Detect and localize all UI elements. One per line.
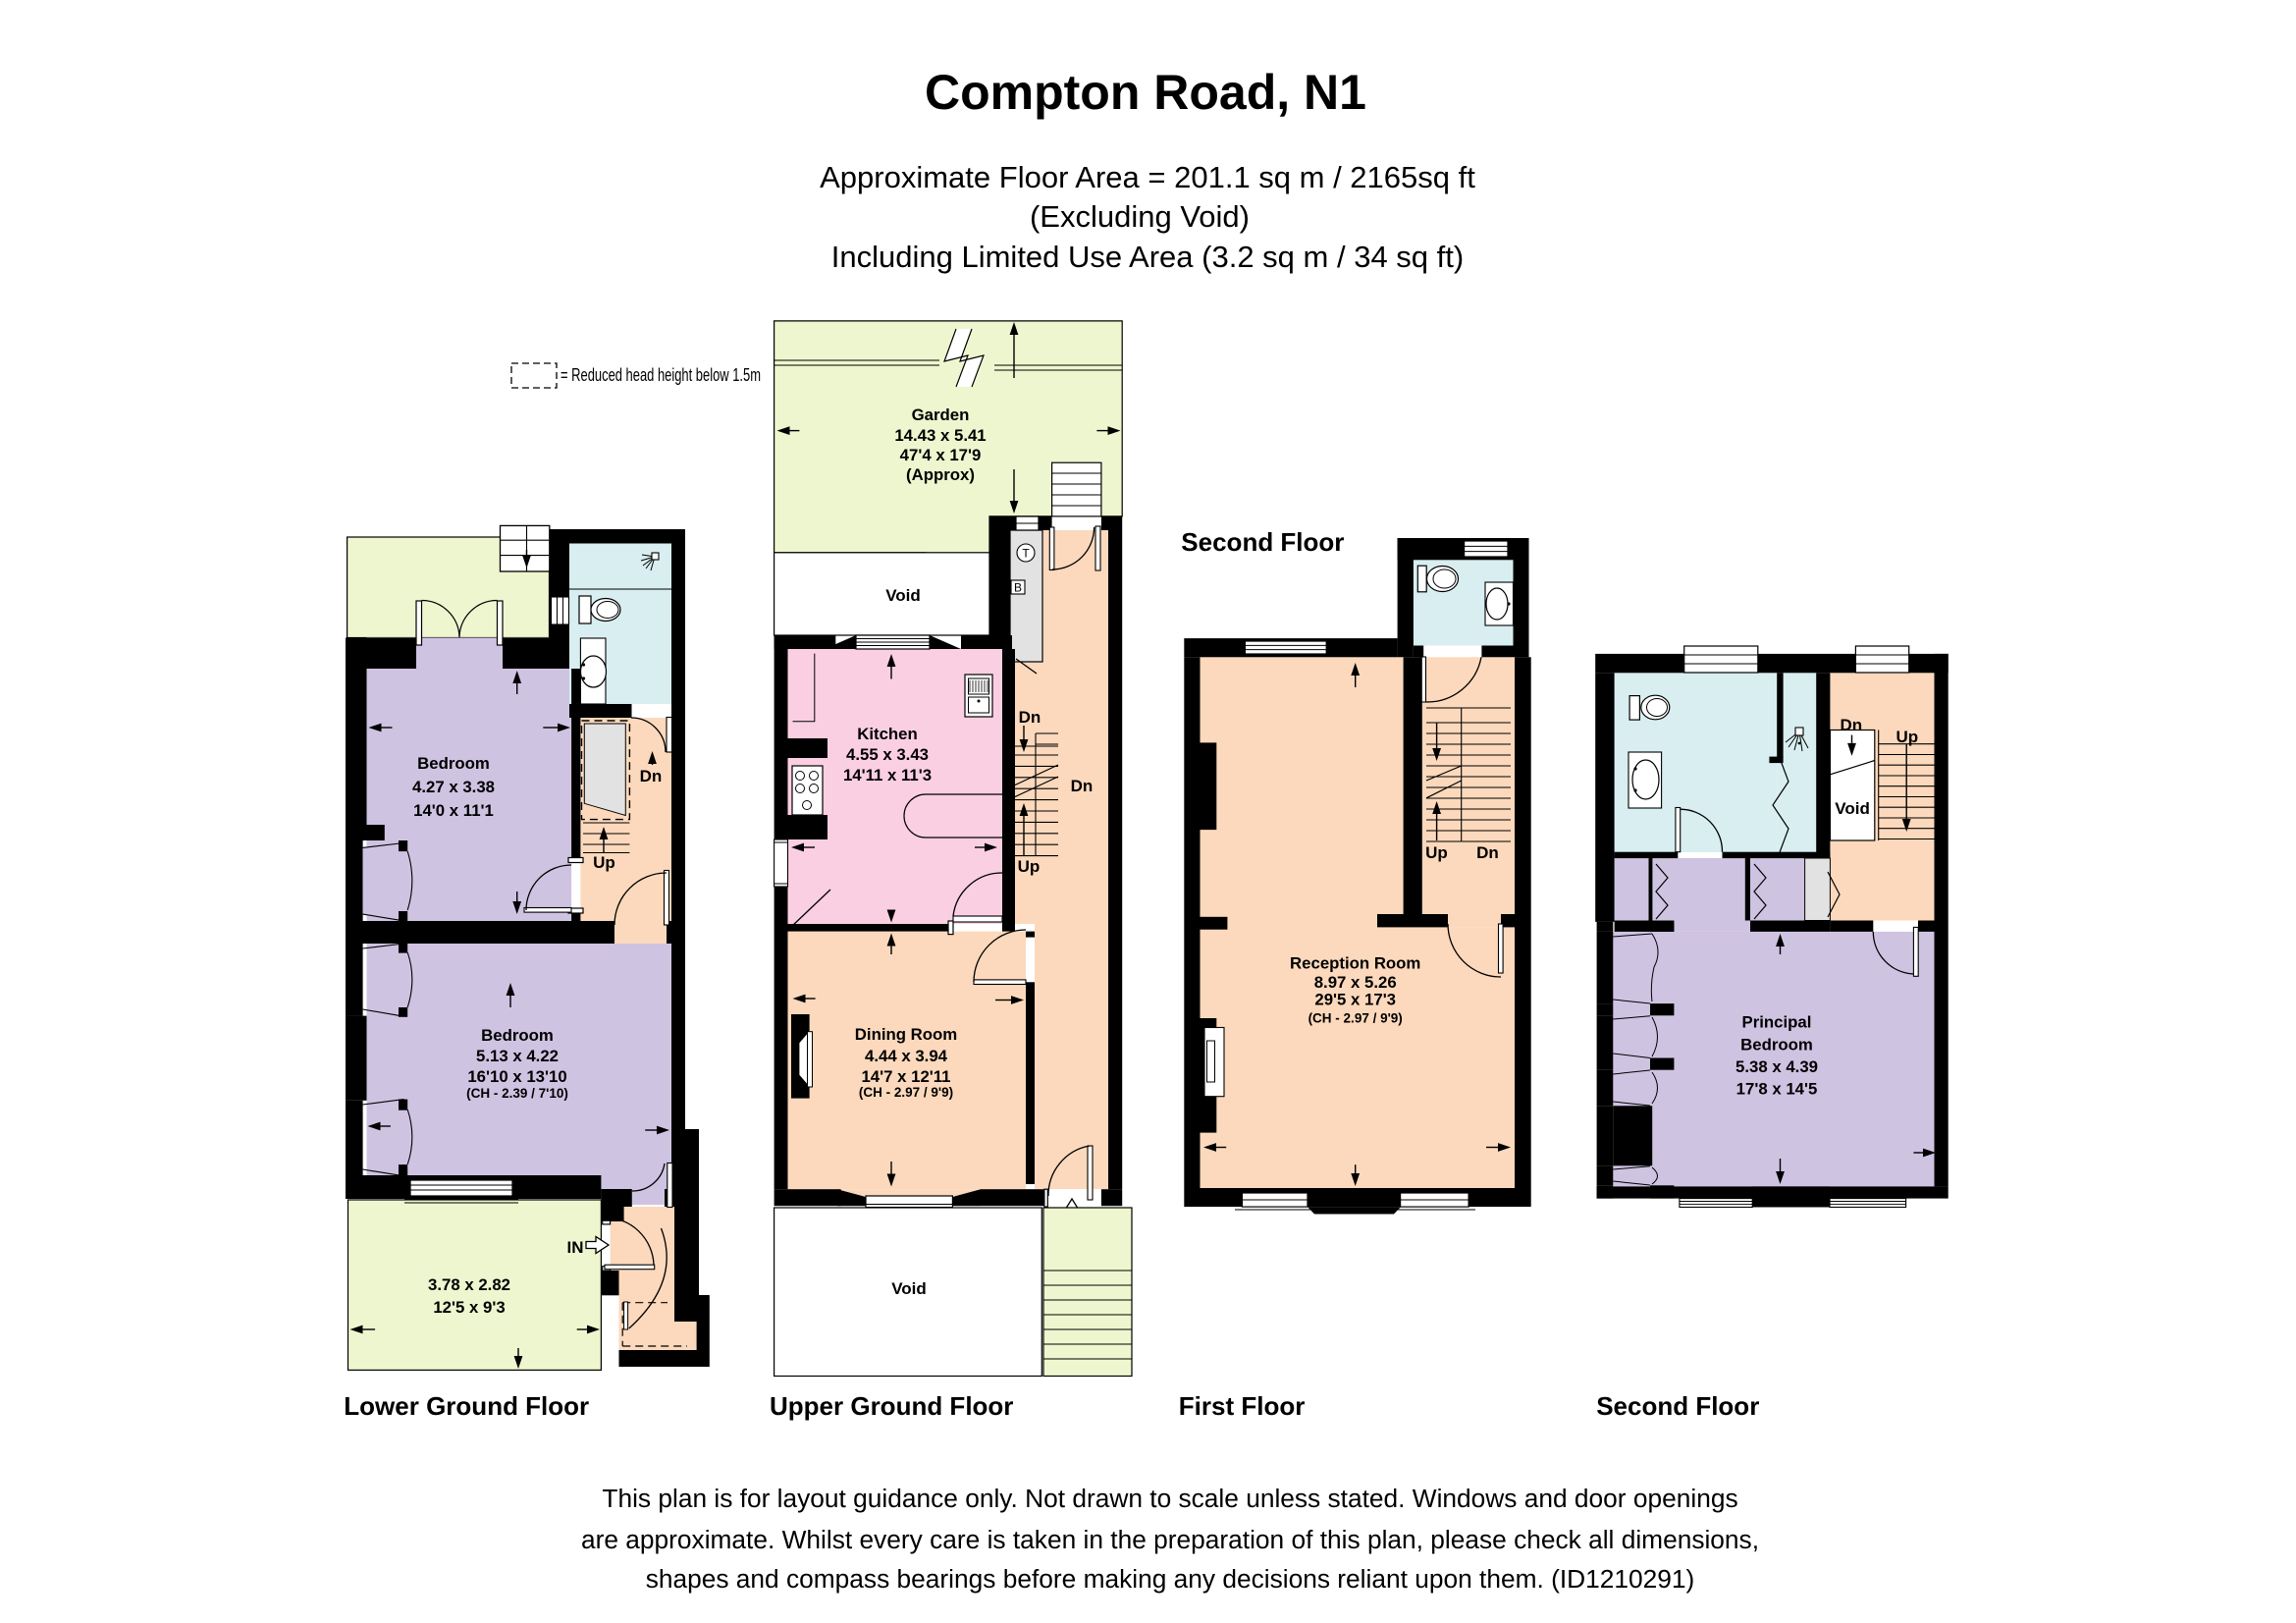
- svg-text:Approximate Floor Area = 201.1: Approximate Floor Area = 201.1 sq m / 21…: [820, 160, 1475, 194]
- svg-text:Including Limited Use Area (3.: Including Limited Use Area (3.2 sq m / 3…: [831, 240, 1464, 274]
- svg-text:Bedroom: Bedroom: [417, 754, 490, 773]
- svg-text:4.55 x 3.43: 4.55 x 3.43: [846, 745, 929, 764]
- svg-text:Dn: Dn: [1840, 716, 1862, 734]
- svg-text:Void: Void: [1835, 799, 1870, 818]
- svg-text:3.78 x 2.82: 3.78 x 2.82: [428, 1275, 510, 1294]
- svg-text:Up: Up: [1425, 843, 1448, 862]
- svg-text:Dn: Dn: [640, 767, 663, 785]
- svg-text:Void: Void: [891, 1279, 927, 1298]
- svg-text:Dining Room: Dining Room: [855, 1025, 957, 1044]
- svg-text:IN: IN: [567, 1238, 584, 1257]
- svg-text:17'8 x 14'5: 17'8 x 14'5: [1736, 1080, 1818, 1099]
- svg-text:(CH - 2.39 / 7'10): (CH - 2.39 / 7'10): [466, 1086, 568, 1101]
- svg-text:Kitchen: Kitchen: [857, 725, 918, 743]
- svg-text:47'4 x 17'9: 47'4 x 17'9: [900, 446, 982, 464]
- svg-text:14'7 x 12'11: 14'7 x 12'11: [861, 1067, 950, 1086]
- svg-text:Bedroom: Bedroom: [1740, 1035, 1813, 1054]
- svg-text:4.44 x 3.94: 4.44 x 3.94: [865, 1047, 948, 1065]
- svg-text:Upper Ground Floor: Upper Ground Floor: [770, 1391, 1013, 1421]
- svg-text:14'0 x 11'1: 14'0 x 11'1: [413, 801, 494, 820]
- svg-text:14.43 x 5.41: 14.43 x 5.41: [894, 426, 986, 445]
- svg-text:Up: Up: [593, 853, 615, 872]
- svg-text:B: B: [1014, 581, 1022, 595]
- svg-text:5.13 x 4.22: 5.13 x 4.22: [476, 1047, 559, 1065]
- svg-text:T: T: [1022, 547, 1030, 561]
- svg-text:Dn: Dn: [1071, 777, 1094, 795]
- svg-text:Reception Room: Reception Room: [1290, 954, 1420, 973]
- svg-text:(Approx): (Approx): [906, 465, 975, 484]
- svg-text:= Reduced head height below 1.: = Reduced head height below 1.5m: [561, 364, 761, 385]
- svg-text:(CH - 2.97 / 9'9): (CH - 2.97 / 9'9): [1308, 1010, 1403, 1025]
- svg-text:(CH - 2.97 / 9'9): (CH - 2.97 / 9'9): [859, 1085, 953, 1100]
- svg-text:Void: Void: [885, 586, 921, 605]
- svg-text:4.27 x 3.38: 4.27 x 3.38: [412, 778, 495, 796]
- svg-text:Principal: Principal: [1742, 1013, 1812, 1032]
- svg-text:29'5 x 17'3: 29'5 x 17'3: [1314, 991, 1396, 1009]
- svg-text:are approximate. Whilst every: are approximate. Whilst every care is ta…: [581, 1525, 1759, 1554]
- svg-text:Up: Up: [1018, 857, 1041, 876]
- svg-text:12'5 x 9'3: 12'5 x 9'3: [433, 1298, 505, 1317]
- svg-text:This plan is for layout guidan: This plan is for layout guidance only. N…: [602, 1484, 1737, 1513]
- svg-text:shapes and compass bearings be: shapes and compass bearings before makin…: [646, 1564, 1695, 1594]
- svg-text:Dn: Dn: [1019, 708, 1041, 727]
- svg-text:Lower Ground Floor: Lower Ground Floor: [344, 1391, 589, 1421]
- svg-text:14'11 x 11'3: 14'11 x 11'3: [843, 766, 932, 784]
- svg-text:Garden: Garden: [912, 406, 970, 424]
- svg-text:Second Floor: Second Floor: [1181, 527, 1344, 557]
- svg-text:Up: Up: [1896, 728, 1918, 746]
- svg-text:(Excluding Void): (Excluding Void): [1030, 199, 1250, 234]
- svg-text:Bedroom: Bedroom: [481, 1026, 554, 1045]
- svg-text:5.38 x 4.39: 5.38 x 4.39: [1735, 1057, 1818, 1076]
- svg-text:First Floor: First Floor: [1179, 1391, 1306, 1421]
- svg-text:Compton Road, N1: Compton Road, N1: [925, 65, 1366, 120]
- svg-text:8.97 x 5.26: 8.97 x 5.26: [1314, 973, 1397, 992]
- svg-text:Dn: Dn: [1476, 843, 1499, 862]
- svg-text:Second Floor: Second Floor: [1596, 1391, 1759, 1421]
- svg-text:16'10 x 13'10: 16'10 x 13'10: [467, 1067, 566, 1086]
